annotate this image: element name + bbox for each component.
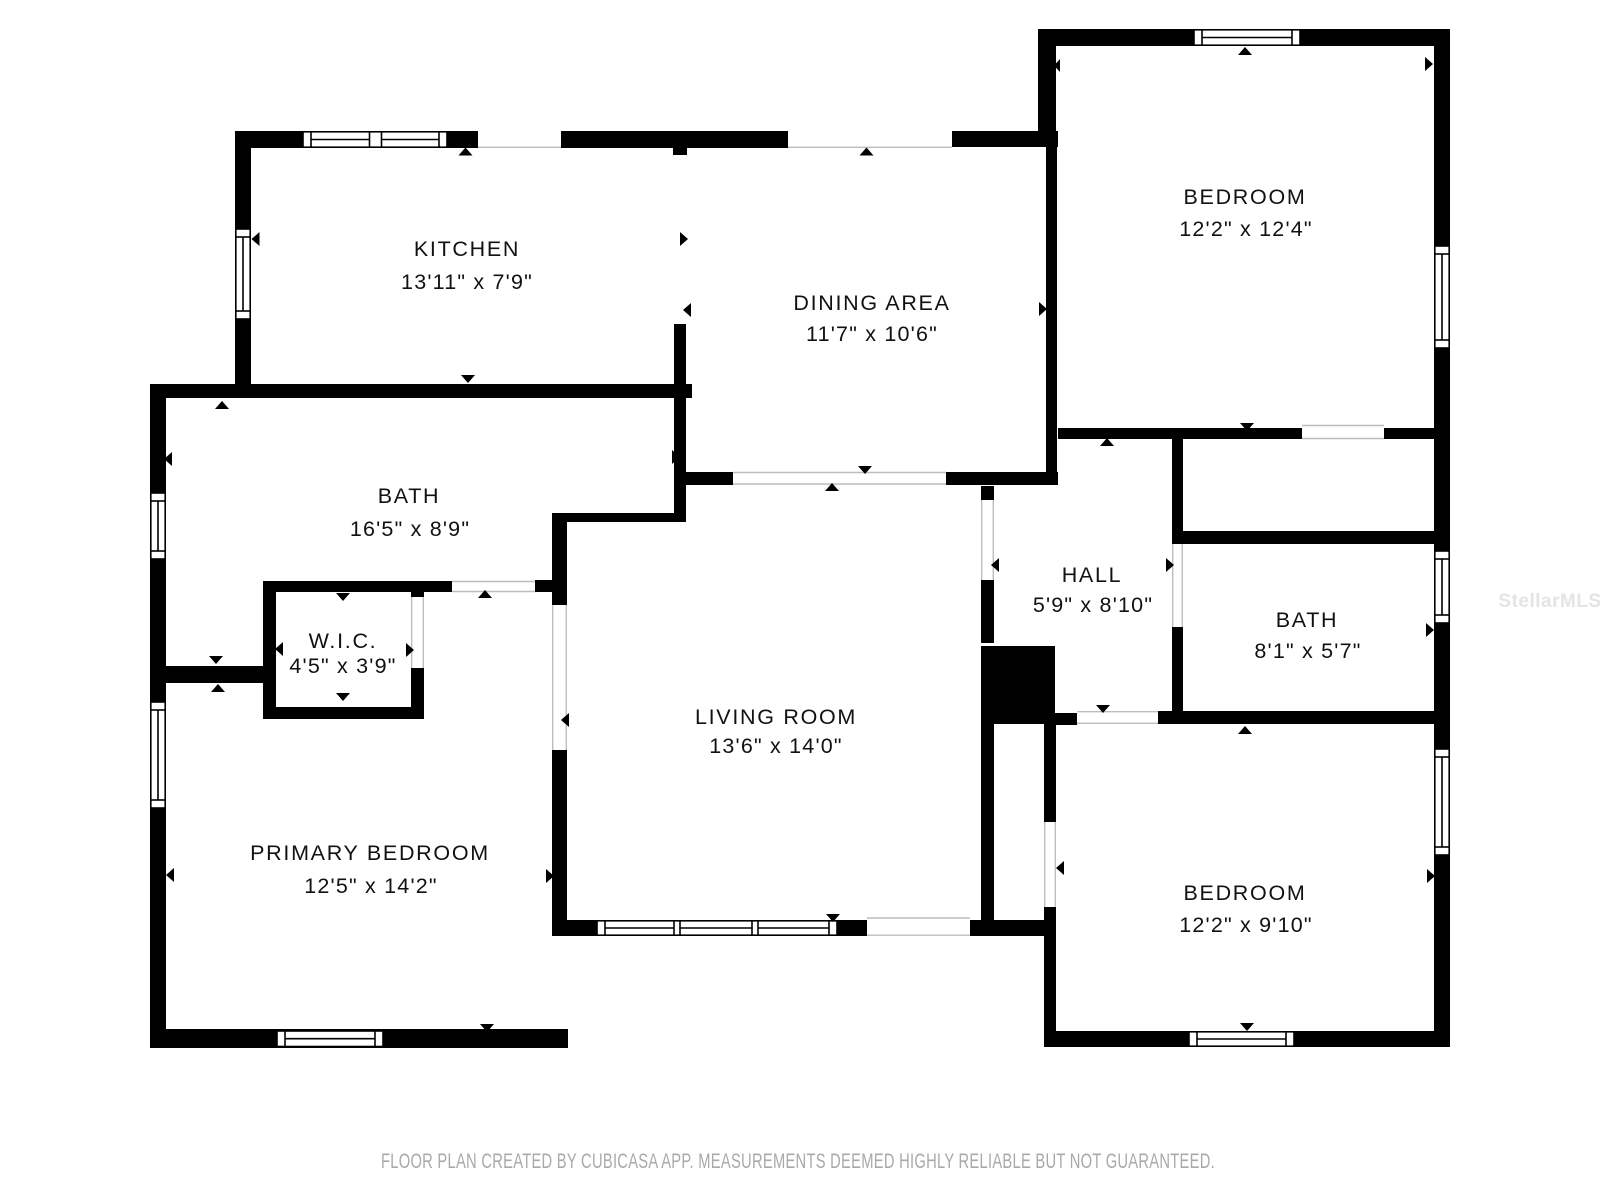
- svg-text:4'5" x 3'9": 4'5" x 3'9": [289, 654, 396, 678]
- svg-text:FLOOR PLAN CREATED BY CUBICASA: FLOOR PLAN CREATED BY CUBICASA APP. MEAS…: [381, 1148, 1215, 1173]
- svg-text:12'5" x 14'2": 12'5" x 14'2": [304, 874, 438, 898]
- svg-text:13'11" x 7'9": 13'11" x 7'9": [401, 270, 533, 294]
- svg-text:12'2" x 12'4": 12'2" x 12'4": [1179, 217, 1313, 241]
- svg-text:BEDROOM: BEDROOM: [1184, 185, 1307, 209]
- svg-text:8'1" x 5'7": 8'1" x 5'7": [1254, 639, 1361, 663]
- svg-text:HALL: HALL: [1062, 563, 1123, 587]
- svg-text:11'7" x 10'6": 11'7" x 10'6": [806, 322, 938, 346]
- svg-text:W.I.C.: W.I.C.: [309, 629, 378, 653]
- svg-text:12'2" x 9'10": 12'2" x 9'10": [1179, 913, 1313, 937]
- svg-text:5'9" x 8'10": 5'9" x 8'10": [1033, 593, 1153, 617]
- svg-text:BATH: BATH: [1276, 608, 1339, 632]
- svg-text:13'6" x 14'0": 13'6" x 14'0": [709, 734, 843, 758]
- svg-text:PRIMARY BEDROOM: PRIMARY BEDROOM: [250, 841, 490, 865]
- svg-text:KITCHEN: KITCHEN: [414, 237, 520, 261]
- svg-text:BEDROOM: BEDROOM: [1184, 881, 1307, 905]
- svg-text:BATH: BATH: [378, 484, 441, 508]
- svg-text:DINING AREA: DINING AREA: [793, 291, 950, 315]
- svg-text:LIVING ROOM: LIVING ROOM: [695, 705, 857, 729]
- svg-text:16'5" x 8'9": 16'5" x 8'9": [350, 517, 470, 541]
- svg-text:StellarMLS: StellarMLS: [1498, 591, 1600, 612]
